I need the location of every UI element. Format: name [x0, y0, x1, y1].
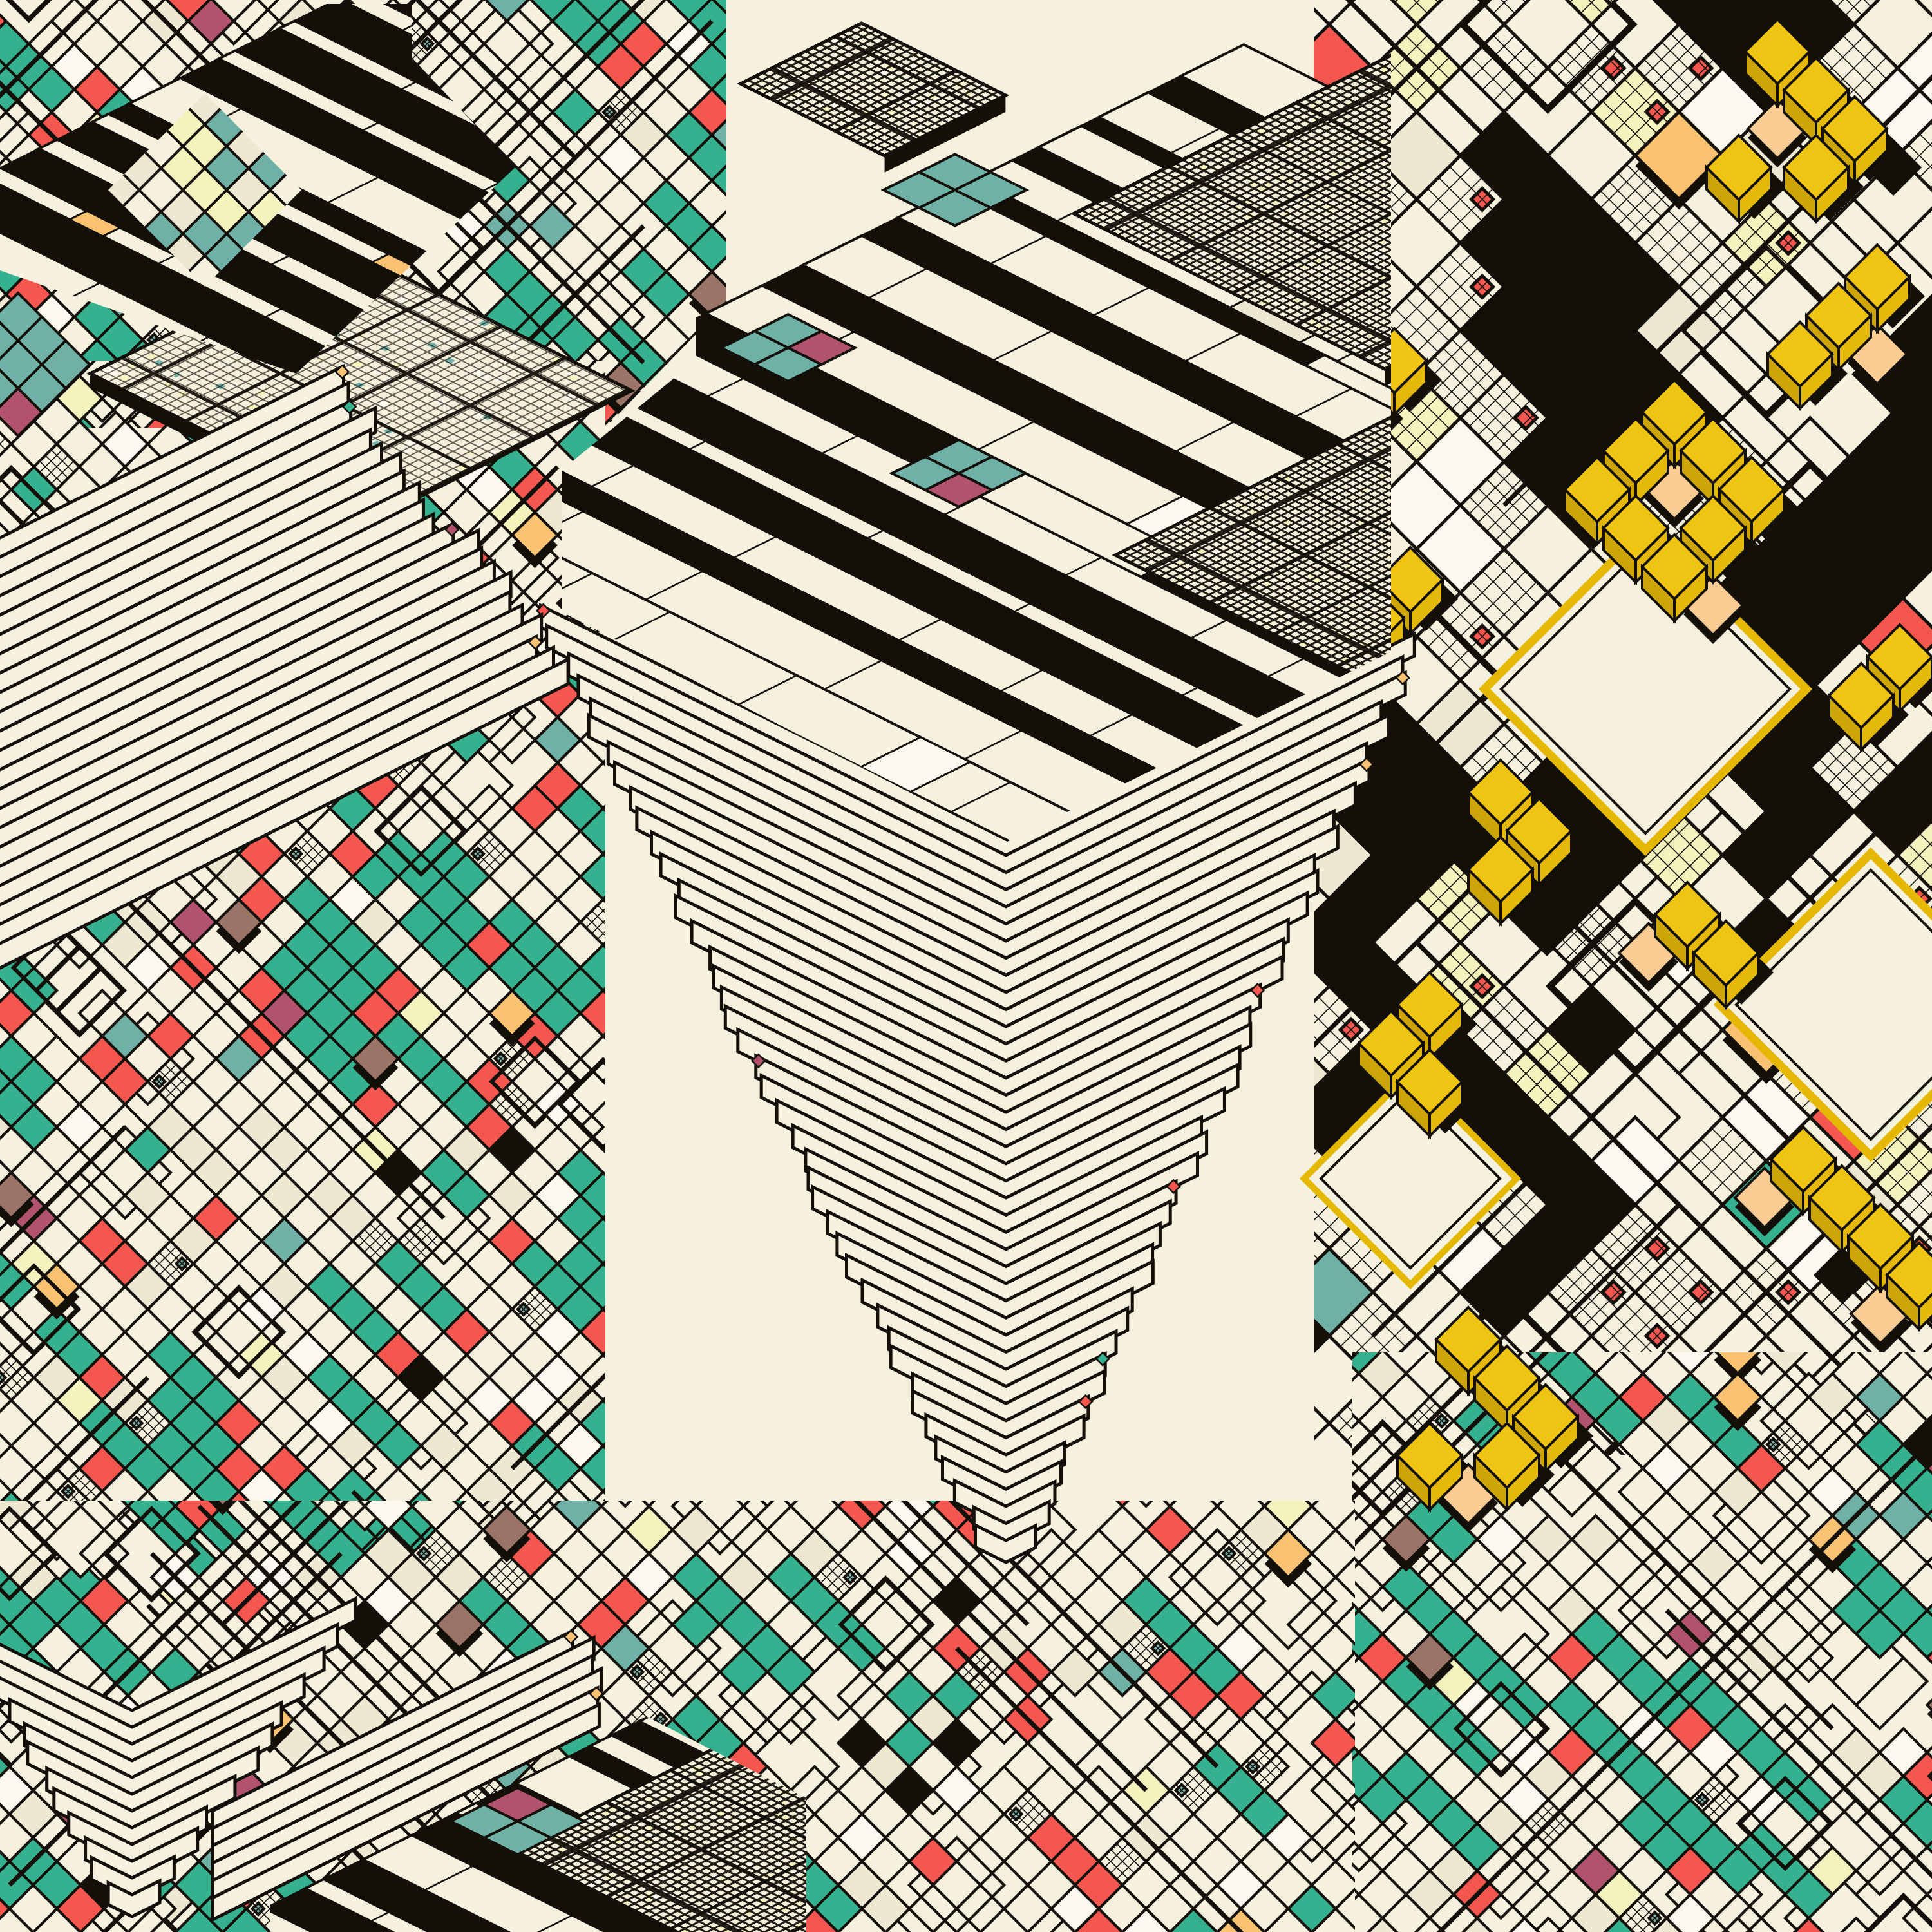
generative-artwork: [0, 0, 1932, 1932]
generative-artwork-canvas: [0, 0, 1932, 1932]
